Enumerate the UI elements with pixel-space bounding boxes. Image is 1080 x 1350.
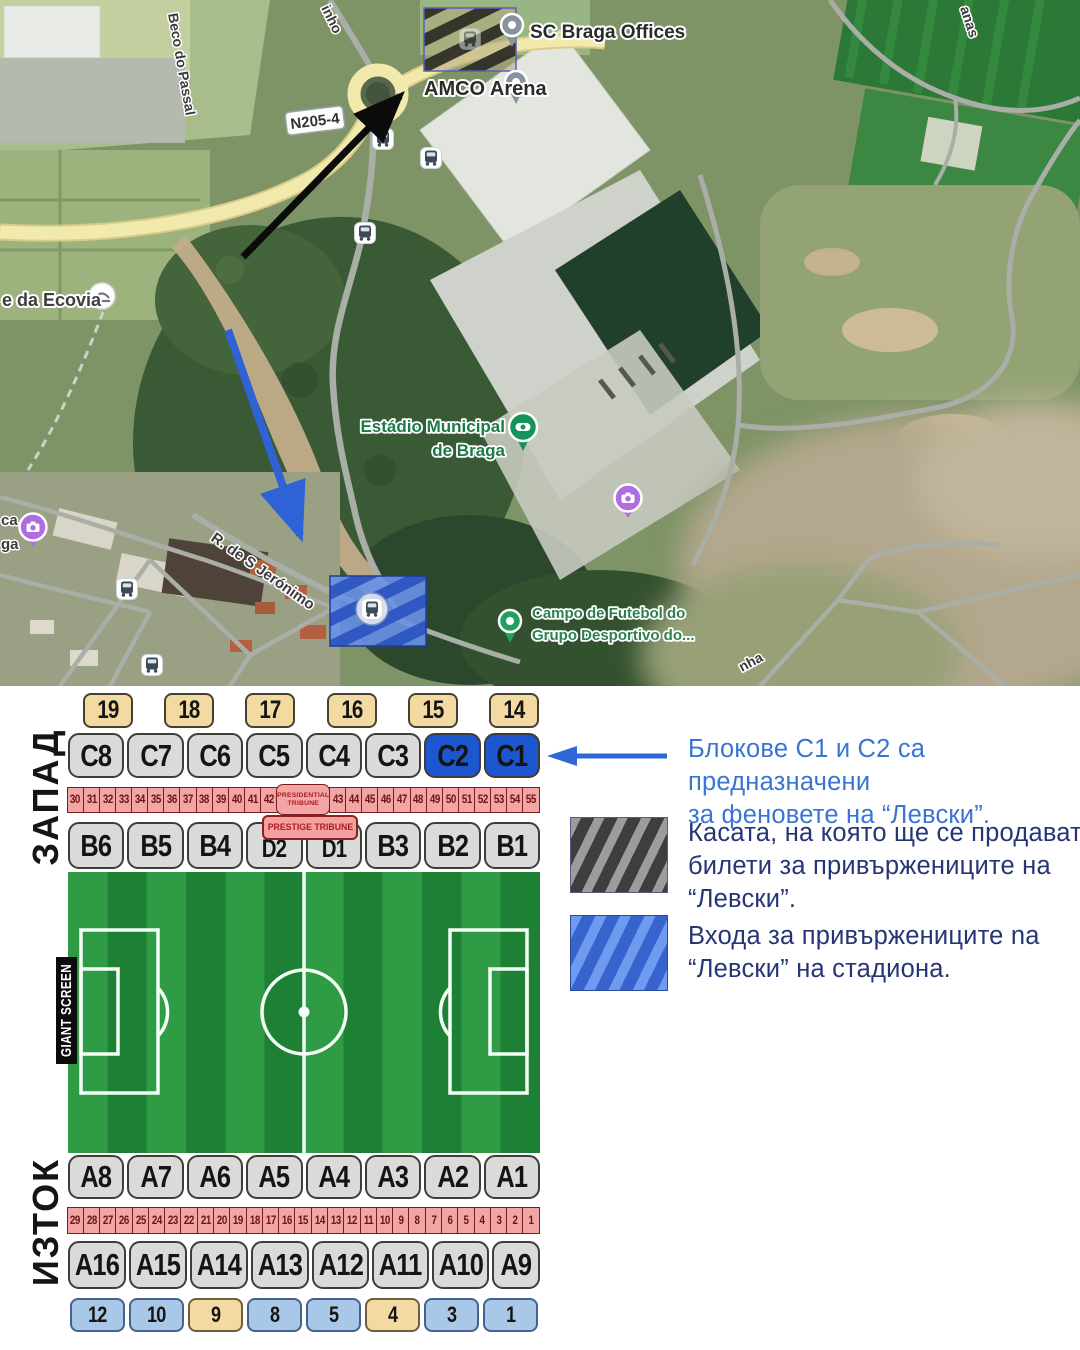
sector-number-cell: 31	[83, 787, 101, 813]
seat-block: B4	[187, 822, 243, 869]
sector-number-cell: 6	[441, 1207, 459, 1234]
campo-label-line2: Grupo Desportivo do...	[532, 627, 695, 644]
seat-block: C8	[68, 733, 124, 778]
seat-block: A5	[246, 1155, 302, 1199]
street-fragment-ga: ga	[1, 536, 19, 553]
sector-number-cell: 47	[393, 787, 411, 813]
sector-number-cell: 52	[474, 787, 492, 813]
sector-number-cell: 17	[262, 1207, 280, 1234]
sector-number-cell: 35	[147, 787, 165, 813]
sector-number-cell: 44	[345, 787, 363, 813]
gate-slot: 10	[127, 1299, 186, 1330]
gate-number: 9	[188, 1298, 243, 1332]
entrance-swatch	[570, 915, 668, 991]
infographic: N205-4 SC Braga Offices AMCO Arena Estád…	[0, 0, 1080, 1350]
sector-number-cell: 34	[131, 787, 149, 813]
sector-number-cell: 2	[506, 1207, 524, 1234]
seat-block: A10	[432, 1241, 490, 1289]
sector-number-cell: 10	[376, 1207, 394, 1234]
sector-number-cell: 27	[99, 1207, 117, 1234]
sector-number-cell: 43	[329, 787, 347, 813]
ecovia-label: e da Ecovia	[2, 290, 102, 310]
sector-row-b: PRESTIGE TRIBUNE B6 B5 B4 D2 D1 B3 B2 B1	[68, 822, 540, 869]
gate-number: 1	[483, 1298, 538, 1332]
gate-slot: 5	[304, 1299, 363, 1330]
sector-number-cell: 25	[132, 1207, 150, 1234]
legend-item-ticket-office: Касата, на която ще се продават билети з…	[688, 817, 1080, 916]
sc-braga-label: SC Braga Offices	[530, 22, 685, 43]
seat-block: A15	[129, 1241, 187, 1289]
prestige-tribune-badge: PRESTIGE TRIBUNE	[262, 815, 358, 840]
sector-number-cell: 5	[457, 1207, 475, 1234]
gate-number: 14	[489, 693, 539, 728]
sector-number-cell: 11	[360, 1207, 378, 1234]
sector-number-cell: 7	[425, 1207, 443, 1234]
seat-block: C6	[187, 733, 243, 778]
sector-number-cell: 46	[377, 787, 395, 813]
gate-slot: 9	[186, 1299, 245, 1330]
sector-row-c: C8 C7 C6 C5 C4 C3 C2 C1	[68, 733, 540, 778]
sector-number-cell: 4	[474, 1207, 492, 1234]
sector-number-cell: 13	[327, 1207, 345, 1234]
seat-block: C4	[306, 733, 362, 778]
gate-number: 15	[408, 693, 458, 728]
entrance-area	[330, 576, 426, 646]
gates-top-row: 19 18 17 16 15 14	[68, 693, 540, 724]
sector-number-cell: 41	[244, 787, 262, 813]
football-pitch	[68, 872, 540, 1153]
campo-label-line1: Campo de Futebol do	[532, 605, 685, 622]
gate-number: 4	[365, 1298, 420, 1332]
seat-block: B2	[424, 822, 480, 869]
sector-number-cell: 24	[148, 1207, 166, 1234]
gates-bottom-row: 12 10 9 8 5 4 3 1	[68, 1299, 540, 1330]
legend-arrow	[545, 744, 670, 768]
estadio-label-line2: de Braga	[432, 441, 505, 460]
seat-block: B5	[127, 822, 183, 869]
sector-number-cell: 48	[410, 787, 428, 813]
map-terrain	[0, 0, 1080, 686]
seat-block: A11	[372, 1241, 428, 1289]
sector-number-cell: 8	[408, 1207, 426, 1234]
sector-number-cell: 38	[196, 787, 214, 813]
gate-number: 10	[129, 1298, 184, 1332]
sector-number-cell: 1	[522, 1207, 540, 1234]
sector-number-cell: 54	[506, 787, 524, 813]
sector-number-cell: 32	[99, 787, 117, 813]
gate-number: 3	[424, 1298, 479, 1332]
sector-number-cell: 36	[163, 787, 181, 813]
sector-number-cell: 53	[490, 787, 508, 813]
seat-block: A16	[68, 1241, 126, 1289]
seat-block-c2: C2	[424, 733, 480, 778]
west-stand-label: ЗАПАД	[25, 729, 67, 866]
sector-number-cell: 26	[115, 1207, 133, 1234]
estadio-label-line1: Estádio Municipal	[360, 417, 505, 436]
seat-block: A4	[306, 1155, 362, 1199]
presidential-tribune-badge: PRESIDENTIALTRIBUNE	[276, 784, 330, 815]
sector-number-cell: 42	[260, 787, 278, 813]
seat-block: C3	[365, 733, 421, 778]
sector-number-cell: 28	[83, 1207, 101, 1234]
ticket-office-swatch	[570, 817, 668, 893]
sector-row-a-upper: A8 A7 A6 A5 A4 A3 A2 A1	[68, 1155, 540, 1199]
sector-number-cell: 19	[229, 1207, 247, 1234]
sector-number-cell: 29	[67, 1207, 85, 1234]
seat-block: B6	[68, 822, 124, 869]
sector-number-cell: 33	[115, 787, 133, 813]
seat-block: A9	[492, 1241, 540, 1289]
satellite-map: N205-4 SC Braga Offices AMCO Arena Estád…	[0, 0, 1080, 686]
sector-number-cell: 14	[311, 1207, 329, 1234]
legend-item-entrance: Входа за привържениците na “Левски” на с…	[688, 920, 1080, 986]
seat-block: A6	[187, 1155, 243, 1199]
sector-number-cell: 20	[213, 1207, 231, 1234]
sector-strip-top: 30 31 32 33 34 35 36 37 38 39 40 41 42 P…	[68, 787, 540, 813]
gate-number: 5	[306, 1298, 361, 1332]
gate-number: 17	[245, 693, 295, 728]
gate-slot: 8	[245, 1299, 304, 1330]
giant-screen: GIANT SCREEN	[56, 957, 77, 1064]
amco-arena-label: AMCO Arena	[424, 78, 547, 100]
sector-number-cell: 55	[522, 787, 540, 813]
street-fragment-ca: ca	[1, 512, 18, 529]
sector-number-cell: 16	[278, 1207, 296, 1234]
seat-block-c1: C1	[484, 733, 540, 778]
sector-number-cell: 30	[67, 787, 85, 813]
sector-number-cell: 9	[392, 1207, 410, 1234]
gate-slot: 3	[422, 1299, 481, 1330]
seat-block: A13	[251, 1241, 309, 1289]
gate-slot: 4	[363, 1299, 422, 1330]
sector-number-cell: 49	[426, 787, 444, 813]
gate-number: 16	[327, 693, 377, 728]
seat-block: A12	[312, 1241, 370, 1289]
gate-number: 8	[247, 1298, 302, 1332]
sector-strip-bottom: 29 28 27 26 25 24 23 22 21 20 19 18 17 1…	[68, 1207, 540, 1234]
sector-number-cell: 39	[212, 787, 230, 813]
seat-block: A2	[424, 1155, 480, 1199]
seat-block: A14	[190, 1241, 248, 1289]
seat-block: C7	[127, 733, 183, 778]
east-stand-label: ИЗТОК	[25, 1158, 67, 1286]
sector-number-cell: 51	[458, 787, 476, 813]
sector-number-cell: 3	[490, 1207, 508, 1234]
sector-number-cell: 12	[343, 1207, 361, 1234]
gate-slot: 12	[68, 1299, 127, 1330]
sector-number-cell: 37	[179, 787, 197, 813]
sector-number-cell: 50	[442, 787, 460, 813]
gate-number: 19	[83, 693, 133, 728]
sector-number-cell: 40	[228, 787, 246, 813]
seat-block: B3	[365, 822, 421, 869]
gate-number: 12	[70, 1298, 125, 1332]
sector-number-cell: 23	[164, 1207, 182, 1234]
sector-number-cell: 22	[180, 1207, 198, 1234]
seat-block: A1	[484, 1155, 540, 1199]
sector-row-a-lower: A16 A15 A14 A13 A12 A11 A10 A9	[68, 1241, 540, 1289]
sector-number-cell: 21	[197, 1207, 215, 1234]
sector-number-cell: 45	[361, 787, 379, 813]
seat-block: C5	[246, 733, 302, 778]
ticket-office-area	[424, 8, 516, 71]
seat-block: A7	[127, 1155, 183, 1199]
gate-slot: 1	[481, 1299, 540, 1330]
sector-number-cell: 18	[246, 1207, 264, 1234]
seat-block: A3	[365, 1155, 421, 1199]
seat-block: A8	[68, 1155, 124, 1199]
sector-number-cell: 15	[294, 1207, 312, 1234]
seat-block: B1	[484, 822, 540, 869]
gate-number: 18	[164, 693, 214, 728]
